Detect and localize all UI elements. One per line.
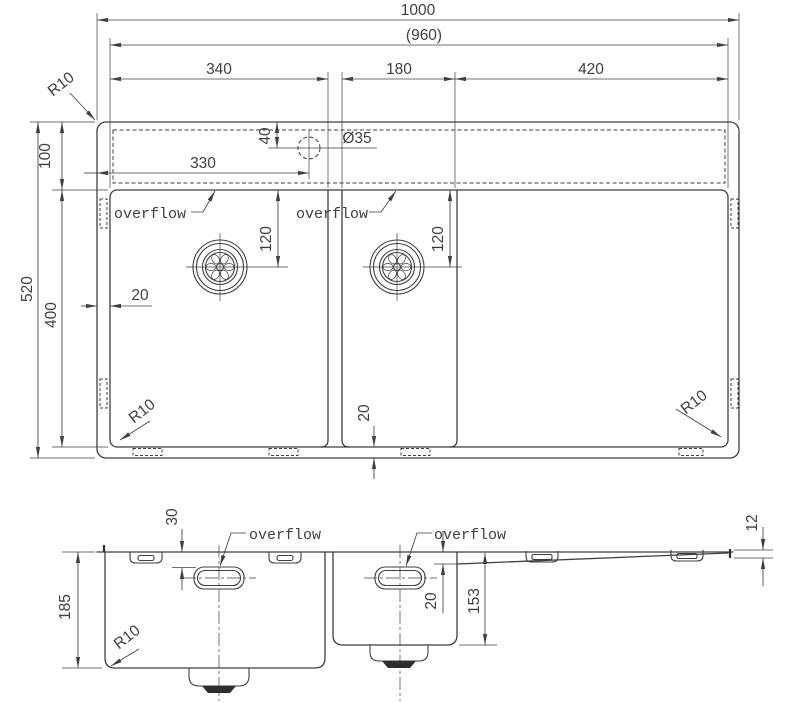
plan-bowl2-right-edge — [450, 190, 457, 447]
section-dimension-lines — [78, 527, 763, 668]
dim-rim-band-depth: 100 — [37, 143, 54, 169]
dim-overall-depth: 520 — [19, 276, 36, 302]
dim-drain-offset-bowl1: 120 — [258, 226, 275, 252]
dim-corner-radius-topleft: R10 — [45, 69, 78, 100]
dim-tap-offset-x: 330 — [190, 155, 216, 172]
plan-drain-bowl2 — [363, 233, 462, 301]
dim-step-depth: 20 — [423, 592, 440, 610]
plan-overflow-label-2: overflow — [296, 206, 368, 223]
dim-corner-radius-section: R10 — [111, 622, 144, 653]
plan-overflow2-leader — [369, 191, 396, 212]
plan-outline — [97, 122, 739, 458]
plan-view: 1000 (960) 340 180 420 R10 100 520 400 3… — [19, 2, 739, 479]
dim-usable-width: (960) — [406, 27, 442, 44]
section-overflow-label-2: overflow — [434, 527, 506, 544]
plan-overflow-label-1: overflow — [114, 206, 186, 223]
dim-bowl-zone-depth: 400 — [43, 302, 60, 328]
dim-corner-radius-bottomleft: R10 — [126, 396, 159, 427]
dim-tap-diameter: Ø35 — [342, 130, 371, 147]
sink-technical-drawing: 1000 (960) 340 180 420 R10 100 520 400 3… — [0, 0, 800, 703]
section-drains — [189, 645, 428, 693]
dim-overall-width: 1000 — [401, 2, 436, 19]
section-overflow-holes — [183, 545, 437, 701]
section-overflow-label-1: overflow — [249, 527, 321, 544]
dim-drainboard-width: 420 — [578, 61, 604, 78]
section-r10-leader — [111, 649, 139, 666]
plan-clip-marks — [100, 199, 738, 456]
section-overflow1-leader — [220, 533, 246, 566]
dim-bowl1-depth: 185 — [57, 594, 74, 620]
section-bowl1 — [105, 552, 325, 668]
section-outline — [97, 545, 733, 668]
dim-overflow-offset: 30 — [164, 508, 181, 526]
dim-bowl1-width: 340 — [206, 61, 232, 78]
section-view: 185 30 overflow overflow 20 153 12 R10 — [57, 508, 773, 701]
plan-divider-left-edge — [321, 190, 328, 447]
plan-extension-lines — [30, 13, 739, 458]
dim-drain-offset-bowl2: 120 — [430, 226, 447, 252]
plan-r10-topleft-leader — [70, 93, 95, 120]
dim-side-margin: 20 — [131, 287, 149, 304]
dim-tap-offset-y: 40 — [257, 127, 274, 145]
section-overflow2-leader — [406, 533, 432, 566]
dim-bowl2-depth: 153 — [466, 588, 483, 614]
dim-drainboard-edge-height: 12 — [744, 514, 761, 531]
plan-divider-right-edge — [342, 190, 349, 447]
plan-r10-bottomright-leader — [676, 409, 721, 437]
dim-bowl2-width: 180 — [386, 61, 412, 78]
dim-bottom-margin: 20 — [356, 404, 373, 422]
plan-overflow1-leader — [191, 191, 215, 212]
